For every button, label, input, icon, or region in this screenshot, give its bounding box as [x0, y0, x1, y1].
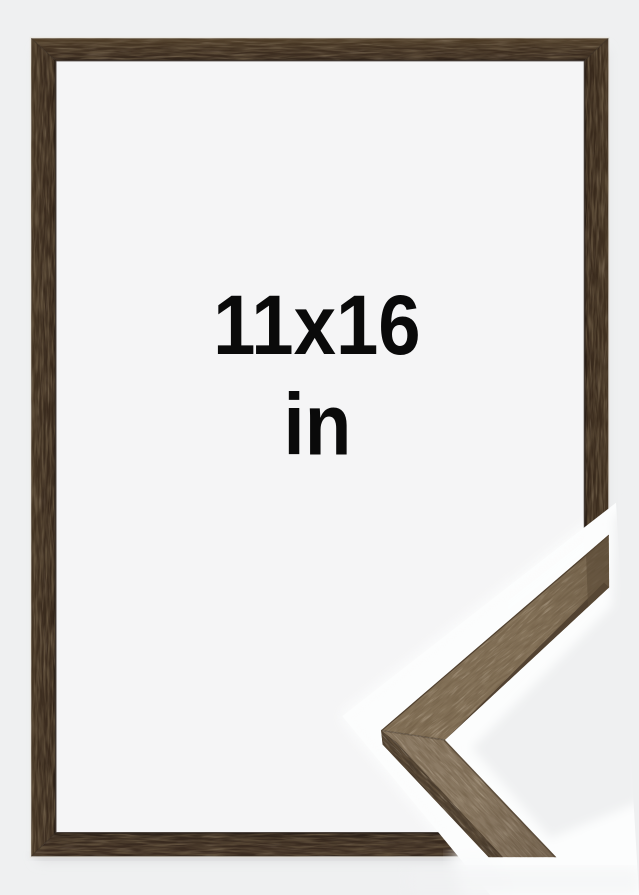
svg-text:11x16: 11x16 — [213, 278, 420, 373]
svg-text:in: in — [284, 377, 352, 474]
